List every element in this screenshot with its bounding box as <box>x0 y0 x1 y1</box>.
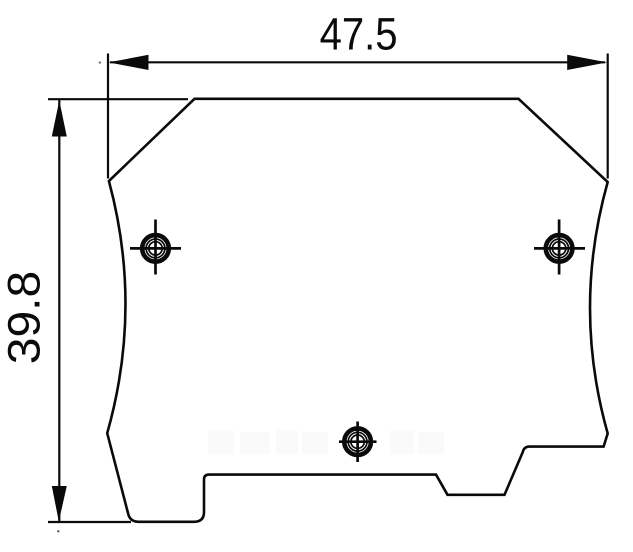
svg-text:39.8: 39.8 <box>0 271 50 365</box>
svg-text:47.5: 47.5 <box>320 9 398 60</box>
